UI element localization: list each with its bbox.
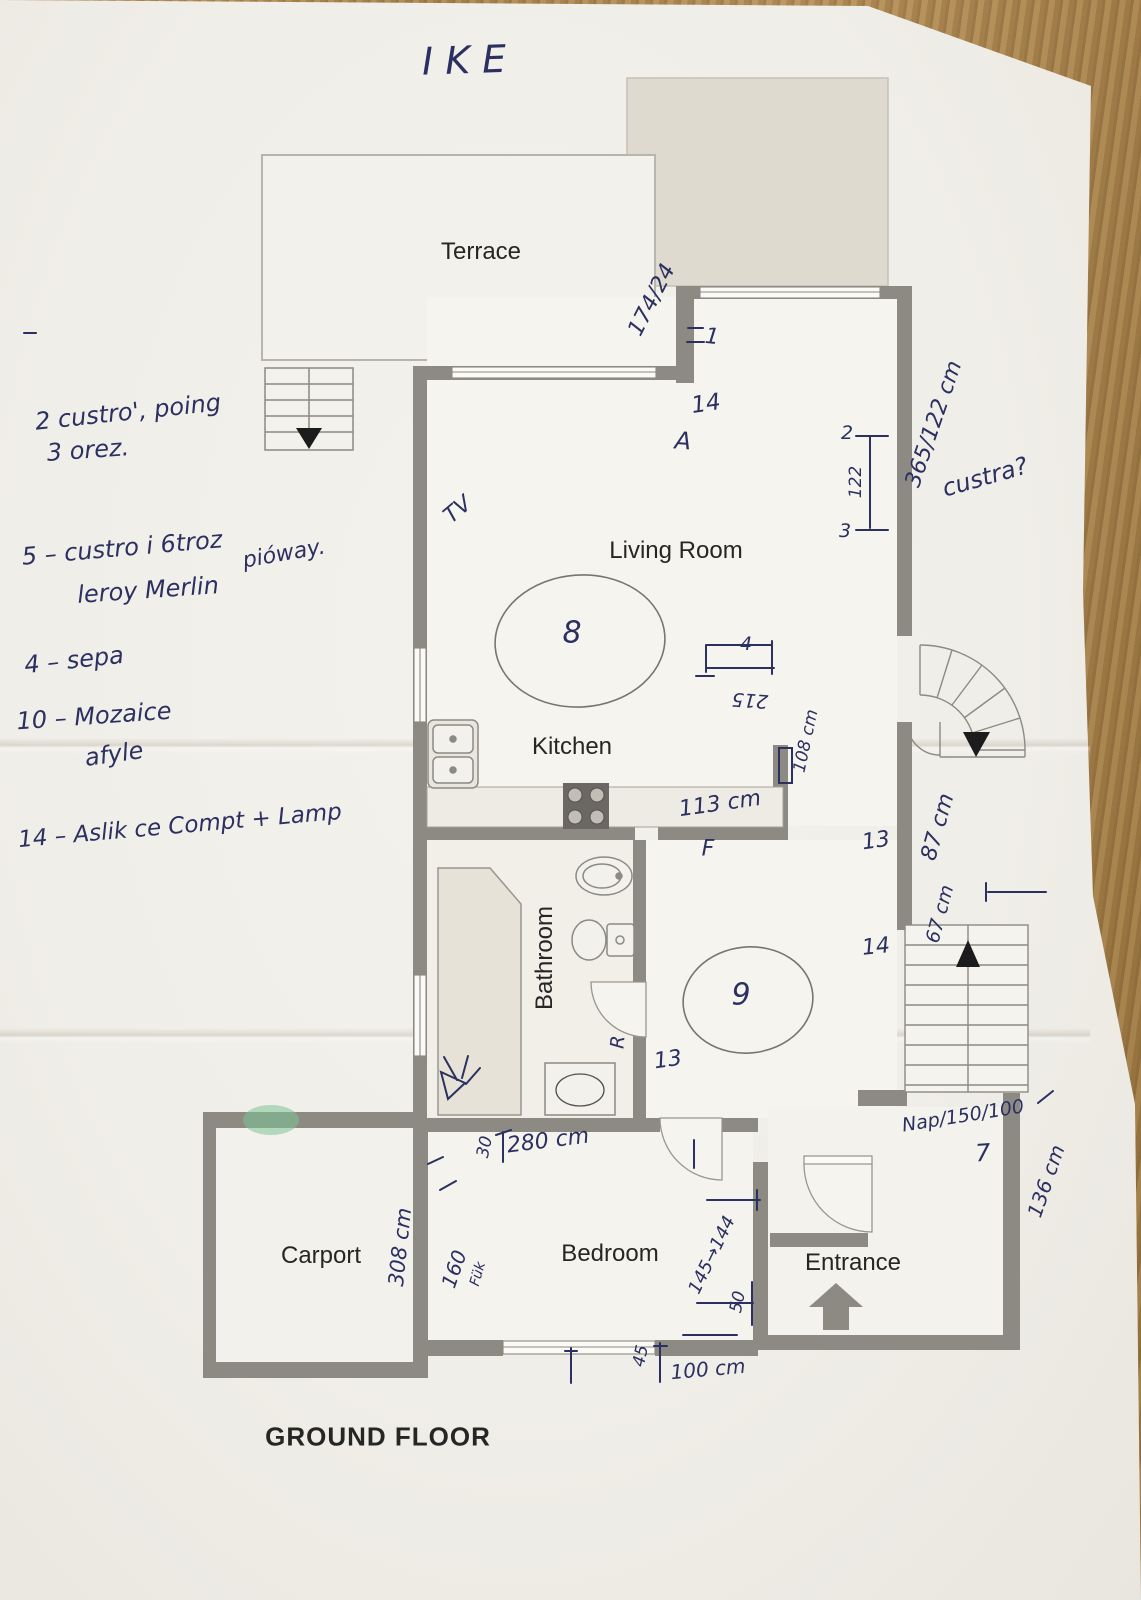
photo-of-floor-plan: Terrace Living Room Kitchen Bathroom Bed… [0,0,1141,1600]
hand-dim-122: 122 [846,466,866,498]
straight-staircase [905,925,1028,1092]
spiral-stairs-down-arrow [963,732,990,757]
green-highlight-mark [243,1105,299,1135]
hand-mark-r: R [606,1034,629,1049]
room-label-bathroom: Bathroom [531,906,559,1010]
hand-circled-9: 9 [731,978,750,1013]
stove [563,783,609,829]
room-label-terrace: Terrace [441,238,521,266]
washing-machine [545,1063,615,1115]
floor-title: GROUND FLOOR [265,1422,491,1453]
terrace-upper-block [627,78,888,286]
hand-mark-13: 13 [860,827,891,856]
hand-mark-1: 1 [704,324,721,350]
handwritten-title: IKE [421,36,519,83]
room-label-living-room: Living Room [609,537,742,565]
room-label-entrance: Entrance [805,1249,901,1277]
hand-dim-215: 215 [731,688,769,712]
hand-mark-13b: 13 [652,1046,683,1075]
spiral-staircase [907,645,1025,757]
note-line: 3 orez. [46,433,130,467]
bathtub [438,868,521,1115]
hand-mark-4: 4 [740,633,752,655]
hand-mark-14: 14 [690,389,723,419]
hand-mark-7: 7 [974,1139,991,1168]
room-label-kitchen: Kitchen [532,733,612,761]
floor-plan-svg [0,0,1141,1600]
hand-mark-2: 2 [841,422,853,444]
room-label-bedroom: Bedroom [561,1240,658,1268]
hand-mark-a: A [674,426,692,455]
hand-mark-f: F [702,837,715,862]
hand-circled-8: 8 [562,616,581,651]
room-label-carport: Carport [281,1242,361,1270]
terrace-stairs [265,368,353,450]
washbasin [576,857,632,895]
kitchen-sink [428,720,478,788]
hand-mark-3: 3 [839,520,851,542]
pen-bracket-right [986,883,1046,901]
hand-mark-14b: 14 [861,933,891,961]
